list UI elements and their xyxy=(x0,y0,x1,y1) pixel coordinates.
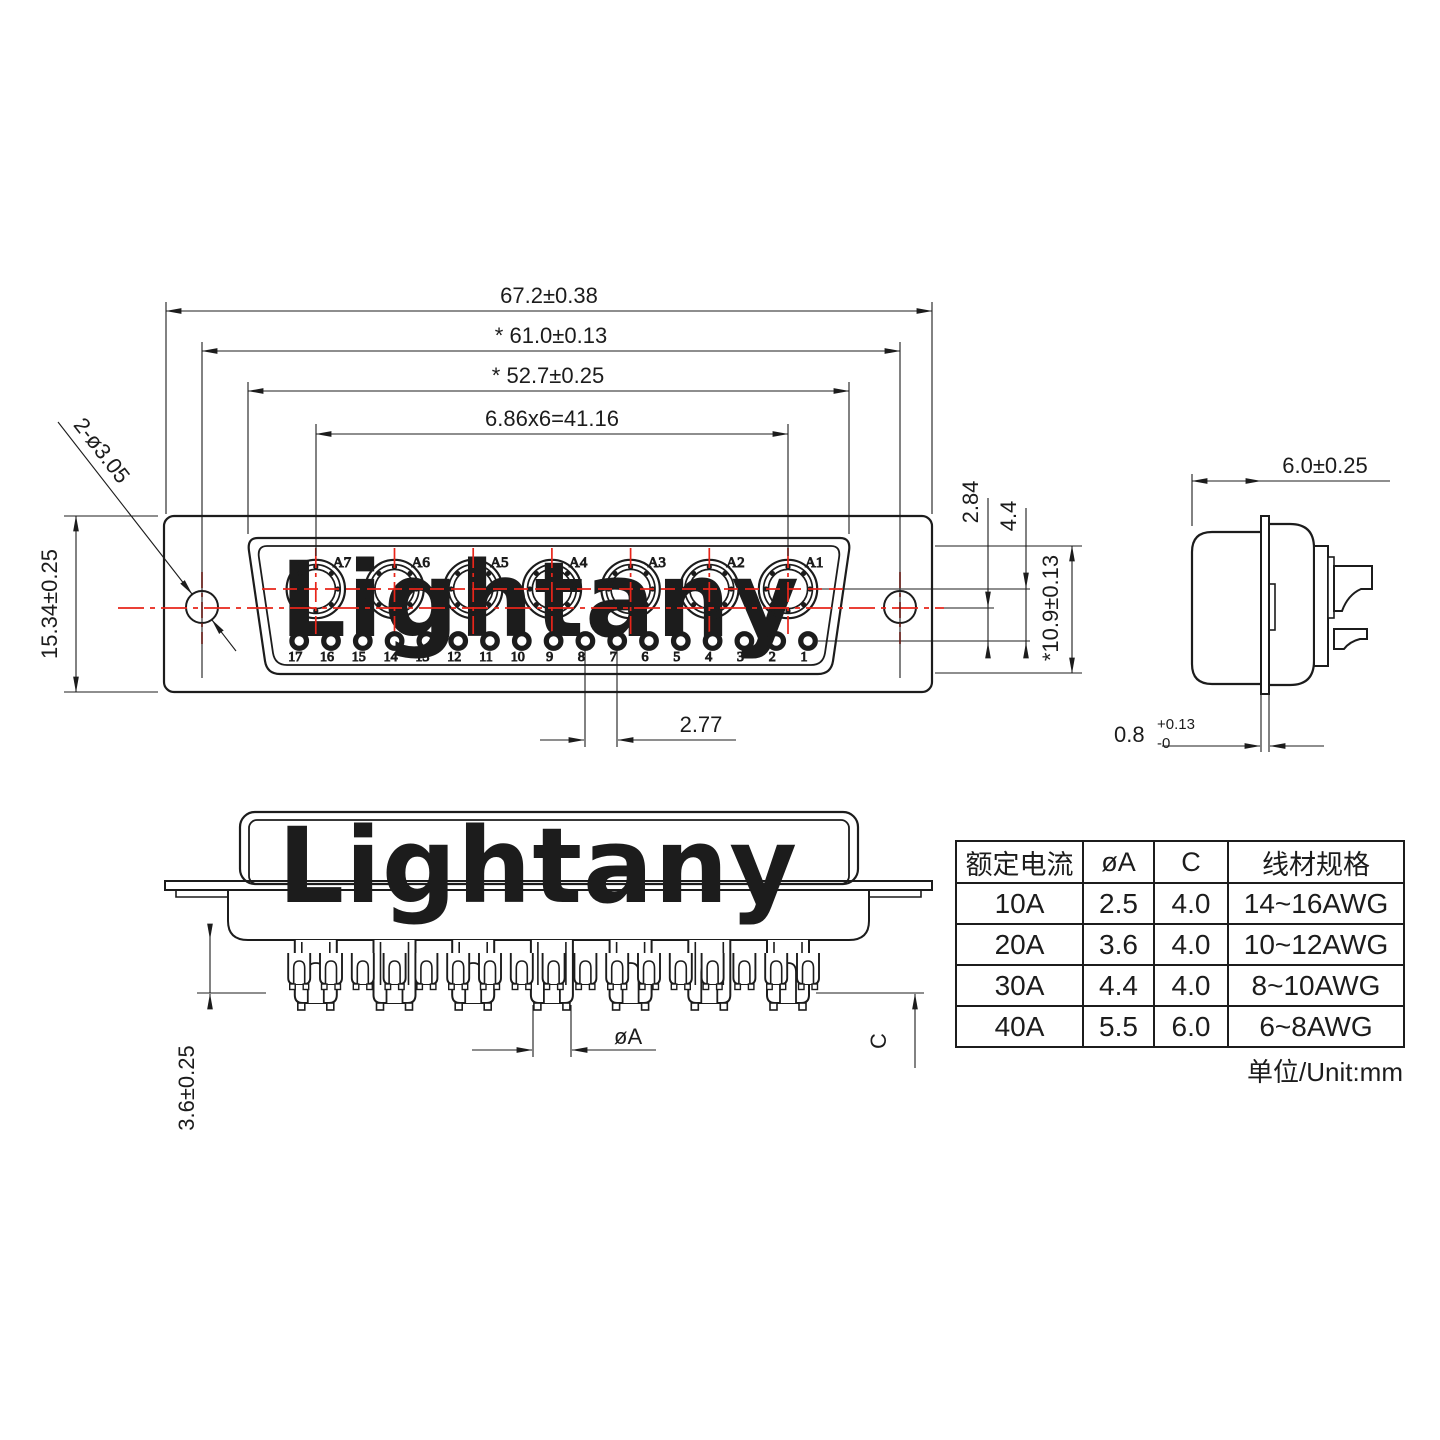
pin-label: 3 xyxy=(737,650,744,665)
small-solder-cup xyxy=(543,953,565,990)
small-solder-cup xyxy=(765,953,787,990)
side-view xyxy=(1192,516,1372,752)
pin-label: 9 xyxy=(546,650,553,665)
small-solder-cup xyxy=(479,953,501,990)
dim-flange-height: 15.34±0.25 xyxy=(37,549,62,659)
dim-contact-pitch: 6.86x6=41.16 xyxy=(485,406,619,431)
col-c: C xyxy=(1154,841,1228,883)
solder-cups xyxy=(288,940,819,1010)
pin-label: 1 xyxy=(801,650,808,665)
dim-flange-thickness: 0.8 xyxy=(1114,722,1145,747)
dim-tail-length: 3.6±0.25 xyxy=(174,1045,199,1130)
small-solder-cup xyxy=(415,953,437,990)
side-view-dimensions xyxy=(1162,474,1390,746)
dim-pin-pitch: 2.77 xyxy=(680,712,723,737)
pin-label: 5 xyxy=(673,650,680,665)
side-contact-carrier xyxy=(1314,546,1328,666)
pin-label: 2 xyxy=(769,650,776,665)
svg-text:-0: -0 xyxy=(1157,735,1170,752)
front-dimensions-left xyxy=(58,422,236,692)
small-solder-cup xyxy=(606,953,628,990)
dim-hole-span: * 61.0±0.13 xyxy=(495,323,607,348)
contact-label: A1 xyxy=(805,555,823,571)
dim-opening-height: *10.9±0.13 xyxy=(1038,555,1063,661)
dim-cup-depth: C xyxy=(866,1033,891,1049)
contact-label: A7 xyxy=(333,555,352,571)
spec-table-header-row: 额定电流 øA C 线材规格 xyxy=(956,841,1404,883)
col-rated-current: 额定电流 xyxy=(956,841,1083,883)
pin-label: 7 xyxy=(610,650,617,665)
small-solder-cup xyxy=(511,953,533,990)
contact-label: A2 xyxy=(726,555,744,571)
pin-label: 6 xyxy=(642,650,649,665)
dim-row-gap: 4.4 xyxy=(996,501,1021,532)
small-solder-cup xyxy=(447,953,469,990)
dim-cup-diameter: øA xyxy=(614,1024,642,1049)
pin-label: 17 xyxy=(288,650,302,665)
col-wire-gauge: 线材规格 xyxy=(1228,841,1404,883)
side-flange-plate xyxy=(1261,516,1269,694)
dim-shroud-width: * 52.7±0.25 xyxy=(492,363,604,388)
small-solder-cup xyxy=(288,953,310,990)
contact-label: A5 xyxy=(490,555,508,571)
small-solder-cup xyxy=(797,953,819,990)
signal-pin: 1 xyxy=(801,634,816,665)
small-solder-cup xyxy=(702,953,724,990)
pin-label: 10 xyxy=(511,650,525,665)
side-body xyxy=(1192,532,1261,684)
dim-row-offset: 2.84 xyxy=(958,481,983,524)
pin-label: 13 xyxy=(415,650,429,665)
pin-label: 15 xyxy=(352,650,366,665)
svg-text:+0.13: +0.13 xyxy=(1157,716,1195,733)
dim-mount-holes: 2-ø3.05 xyxy=(69,413,135,488)
watermark-lower: Lightany xyxy=(278,805,798,927)
connector-drawing-page: Lightany Lightany A1A2A3A4A5A6A7 1234567… xyxy=(0,0,1440,1440)
small-solder-cup xyxy=(320,953,342,990)
pin-label: 14 xyxy=(384,650,398,665)
dim-shell-depth: 6.0±0.25 xyxy=(1282,453,1367,478)
spec-table: 额定电流 øA C 线材规格 10A2.5 4.014~16AWG 20A3.6… xyxy=(955,840,1405,1048)
pin-label: 12 xyxy=(447,650,461,665)
pin-label: 8 xyxy=(578,650,585,665)
contact-label: A4 xyxy=(569,555,588,571)
pin-label: 4 xyxy=(705,650,712,665)
side-terminal-upper xyxy=(1334,566,1372,611)
small-solder-cup xyxy=(733,953,755,990)
small-solder-cup xyxy=(352,953,374,990)
contact-label: A3 xyxy=(648,555,666,571)
unit-note: 单位/Unit:mm xyxy=(955,1052,1403,1089)
dim-total-width: 67.2±0.38 xyxy=(500,283,598,308)
small-solder-cup xyxy=(638,953,660,990)
table-row: 30A4.4 4.08~10AWG xyxy=(956,965,1404,1006)
table-row: 40A5.5 6.06~8AWG xyxy=(956,1006,1404,1047)
table-row: 20A3.6 4.010~12AWG xyxy=(956,924,1404,965)
pin-label: 16 xyxy=(320,650,334,665)
side-terminal-lower xyxy=(1334,629,1367,649)
pin-label: 11 xyxy=(479,650,492,665)
small-solder-cup xyxy=(670,953,692,990)
table-row: 10A2.5 4.014~16AWG xyxy=(956,883,1404,924)
col-dia-a: øA xyxy=(1083,841,1154,883)
small-solder-cup xyxy=(384,953,406,990)
small-solder-cup xyxy=(574,953,596,990)
contact-label: A6 xyxy=(412,555,431,571)
drawing-canvas: Lightany Lightany A1A2A3A4A5A6A7 1234567… xyxy=(0,0,1440,1440)
